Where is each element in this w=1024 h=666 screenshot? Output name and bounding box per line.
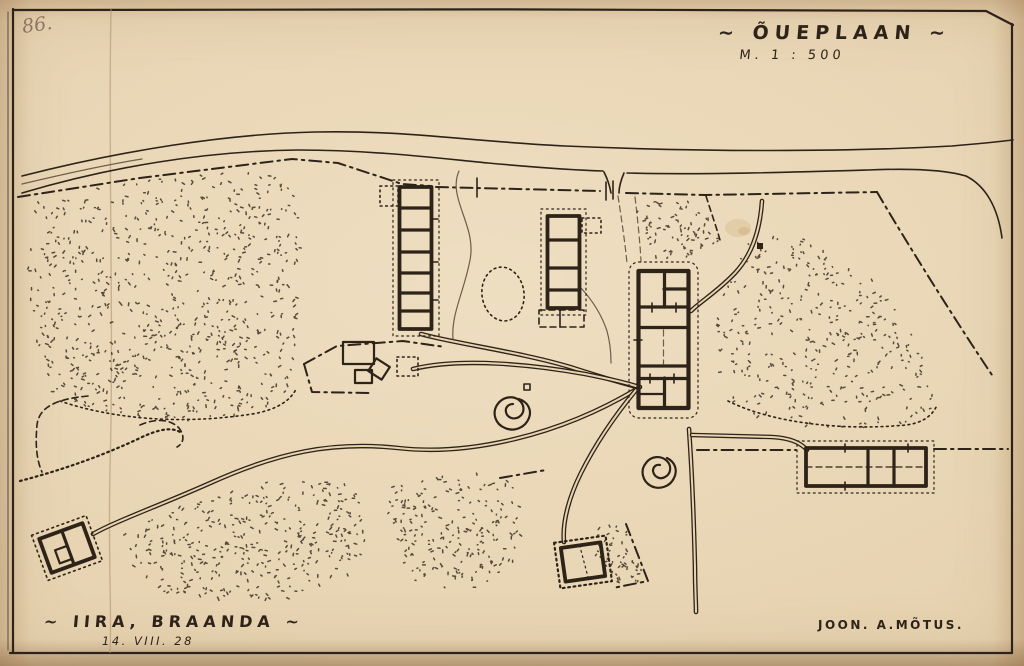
grove-stipple-east xyxy=(717,237,933,428)
drafter-credit: JOON. A.MÕTUS. xyxy=(818,618,964,632)
paper-stain xyxy=(725,219,751,237)
plan-title: ~ ÕUEPLAAN ~ xyxy=(717,22,939,44)
grove-stipple-west xyxy=(28,173,301,421)
path-to-southwest-outbuilding xyxy=(93,387,640,534)
page-number: 86. xyxy=(21,12,54,38)
property-boundary xyxy=(18,159,1008,450)
path-junction-marker xyxy=(757,243,763,249)
grove-stipple-north xyxy=(637,201,719,258)
vegetation-stipple xyxy=(28,173,932,601)
north-barn-porch xyxy=(539,310,584,327)
main-house xyxy=(629,262,698,418)
plan-caption: ~ IIRA, BRAANDA ~ xyxy=(43,612,305,631)
farm-paths xyxy=(93,171,807,612)
plan-scale: M. 1 : 500 xyxy=(701,48,883,63)
north-barn xyxy=(539,209,601,327)
road-entrance xyxy=(619,173,624,193)
trees xyxy=(478,264,675,487)
site-plan-drawing xyxy=(0,0,1024,666)
north-barn-annex xyxy=(582,218,601,233)
fold-crease xyxy=(109,9,111,653)
grove-stipple-southwest xyxy=(124,482,365,601)
path-to-south-outbuilding xyxy=(564,390,636,542)
border-frame xyxy=(8,9,1013,653)
road xyxy=(22,132,1013,238)
tree-crown-dotted xyxy=(478,264,527,323)
tree-scribble xyxy=(643,457,676,488)
scanned-plan-page: 86. ~ ÕUEPLAAN ~ M. 1 : 500 ~ IIRA, BRAA… xyxy=(0,0,1024,666)
southwest-outbuilding xyxy=(32,516,103,581)
driveway-dashes xyxy=(618,196,720,263)
west-barn xyxy=(380,180,439,336)
plan-date: 14. VIII. 28 xyxy=(102,634,194,648)
west-barn-annex xyxy=(380,186,398,206)
path-from-road-gate xyxy=(691,201,762,311)
footpath-faint xyxy=(453,171,471,339)
east-building xyxy=(797,441,934,493)
well-marker xyxy=(524,384,530,390)
field-boundaries xyxy=(20,389,937,588)
road-entrance xyxy=(604,172,611,193)
grove-stipple-south xyxy=(388,473,522,588)
tree-scribble xyxy=(495,397,530,429)
